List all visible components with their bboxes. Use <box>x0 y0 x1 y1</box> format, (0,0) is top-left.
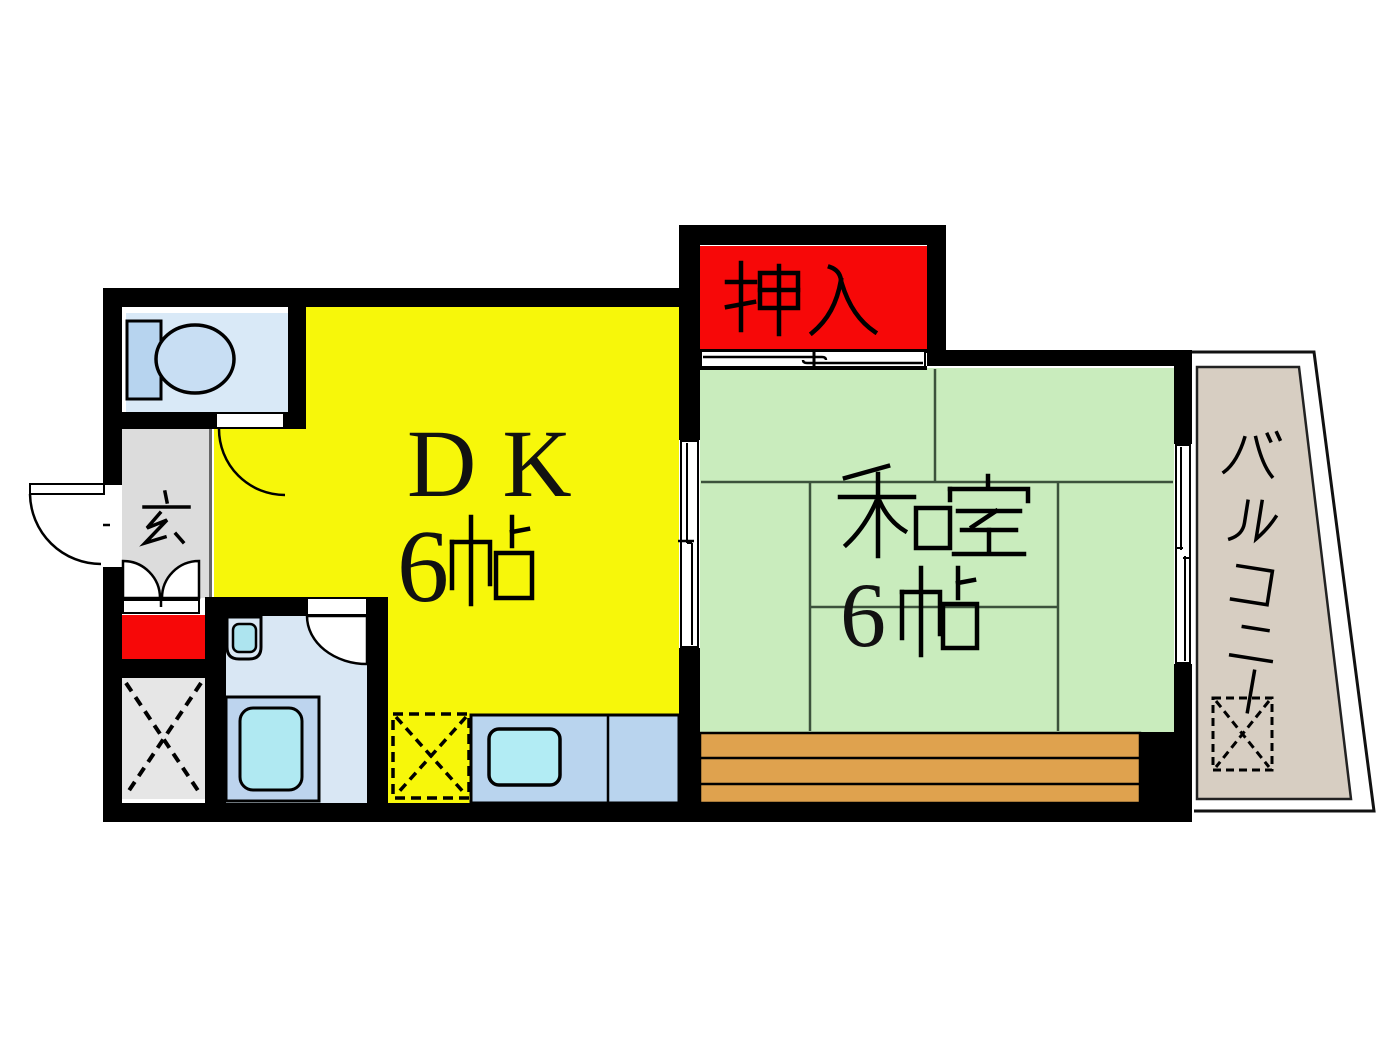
svg-text:6: 6 <box>397 509 449 624</box>
svg-text:DK: DK <box>407 410 598 517</box>
svg-text:6: 6 <box>840 564 886 666</box>
